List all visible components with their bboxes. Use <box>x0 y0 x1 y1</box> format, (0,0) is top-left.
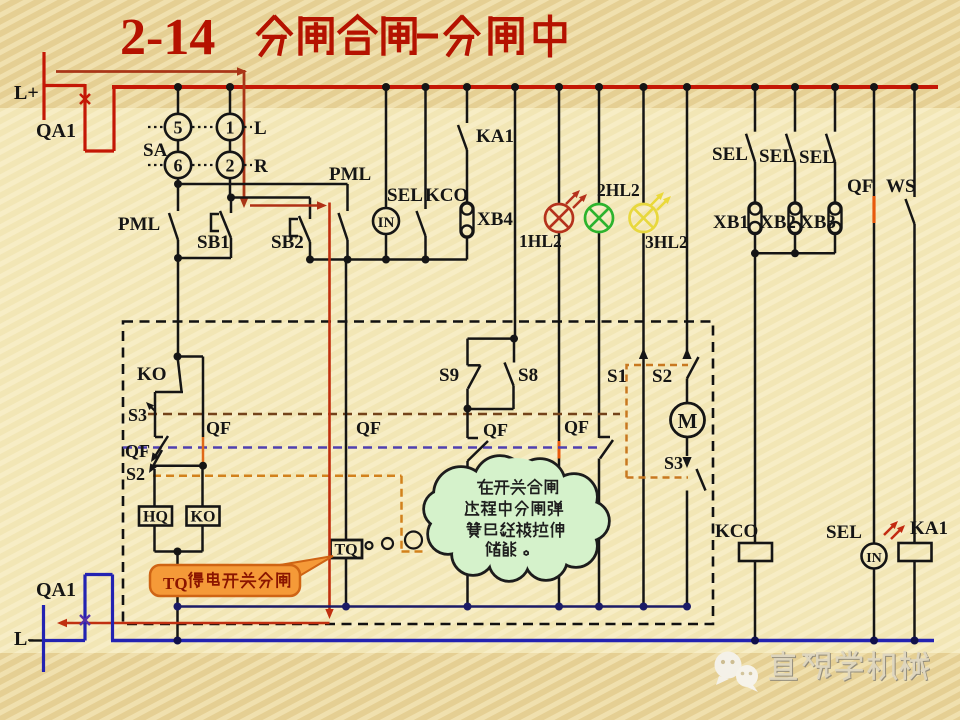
svg-text:S2: S2 <box>652 366 672 387</box>
svg-text:1HL2: 1HL2 <box>519 231 562 251</box>
svg-text:2-14: 2-14 <box>120 9 215 66</box>
svg-text:KCO: KCO <box>715 521 758 542</box>
svg-text:XB4: XB4 <box>477 209 513 230</box>
svg-text:KCO: KCO <box>425 185 468 206</box>
svg-text:5: 5 <box>174 118 183 138</box>
svg-text:SEL: SEL <box>712 144 748 165</box>
svg-text:S2: S2 <box>126 464 145 484</box>
svg-text:HQ: HQ <box>143 509 168 526</box>
svg-text:QA1: QA1 <box>36 579 76 601</box>
svg-text:SB1: SB1 <box>197 232 230 253</box>
svg-text:TQ: TQ <box>163 574 188 593</box>
svg-text:2: 2 <box>226 156 235 176</box>
svg-text:KO: KO <box>137 364 167 385</box>
svg-text:1: 1 <box>226 118 235 138</box>
svg-text:IN: IN <box>866 551 882 566</box>
svg-text:SEL: SEL <box>759 146 795 167</box>
svg-text:S8: S8 <box>518 365 538 386</box>
svg-text:XB1: XB1 <box>713 212 749 233</box>
svg-text:QF: QF <box>356 418 381 438</box>
svg-text:S1: S1 <box>607 366 627 387</box>
svg-text:SB2: SB2 <box>271 232 304 253</box>
svg-text:L: L <box>254 118 267 139</box>
svg-text:KA1: KA1 <box>476 126 514 147</box>
svg-text:SEL: SEL <box>799 147 835 168</box>
svg-text:XB2: XB2 <box>760 212 796 233</box>
svg-text:S9: S9 <box>439 365 459 386</box>
svg-text:TQ: TQ <box>334 542 357 559</box>
svg-text:L+: L+ <box>14 82 39 104</box>
svg-text:QF: QF <box>125 441 150 461</box>
svg-text:KA1: KA1 <box>910 518 948 539</box>
svg-text:PML: PML <box>118 214 160 235</box>
svg-text:QF: QF <box>206 418 231 438</box>
svg-text:M: M <box>678 409 698 433</box>
svg-text:KO: KO <box>191 509 216 526</box>
svg-text:SA: SA <box>143 140 168 161</box>
svg-text:L-: L- <box>14 628 34 650</box>
svg-text:R: R <box>254 156 268 177</box>
svg-text:SEL: SEL <box>387 185 423 206</box>
svg-text:QF: QF <box>564 417 589 437</box>
svg-text:SEL: SEL <box>826 522 862 543</box>
svg-text:QA1: QA1 <box>36 120 76 142</box>
svg-text:S3: S3 <box>128 405 147 425</box>
svg-text:6: 6 <box>174 156 183 176</box>
svg-text:QF: QF <box>483 420 508 440</box>
svg-text:WS: WS <box>886 176 916 197</box>
svg-text:2HL2: 2HL2 <box>597 180 640 200</box>
svg-text:QF: QF <box>847 176 873 197</box>
svg-text:XB3: XB3 <box>800 212 836 233</box>
svg-text:PML: PML <box>329 164 371 185</box>
svg-text:3HL2: 3HL2 <box>645 232 688 252</box>
svg-text:S3: S3 <box>664 453 683 473</box>
svg-text:IN: IN <box>378 215 395 231</box>
